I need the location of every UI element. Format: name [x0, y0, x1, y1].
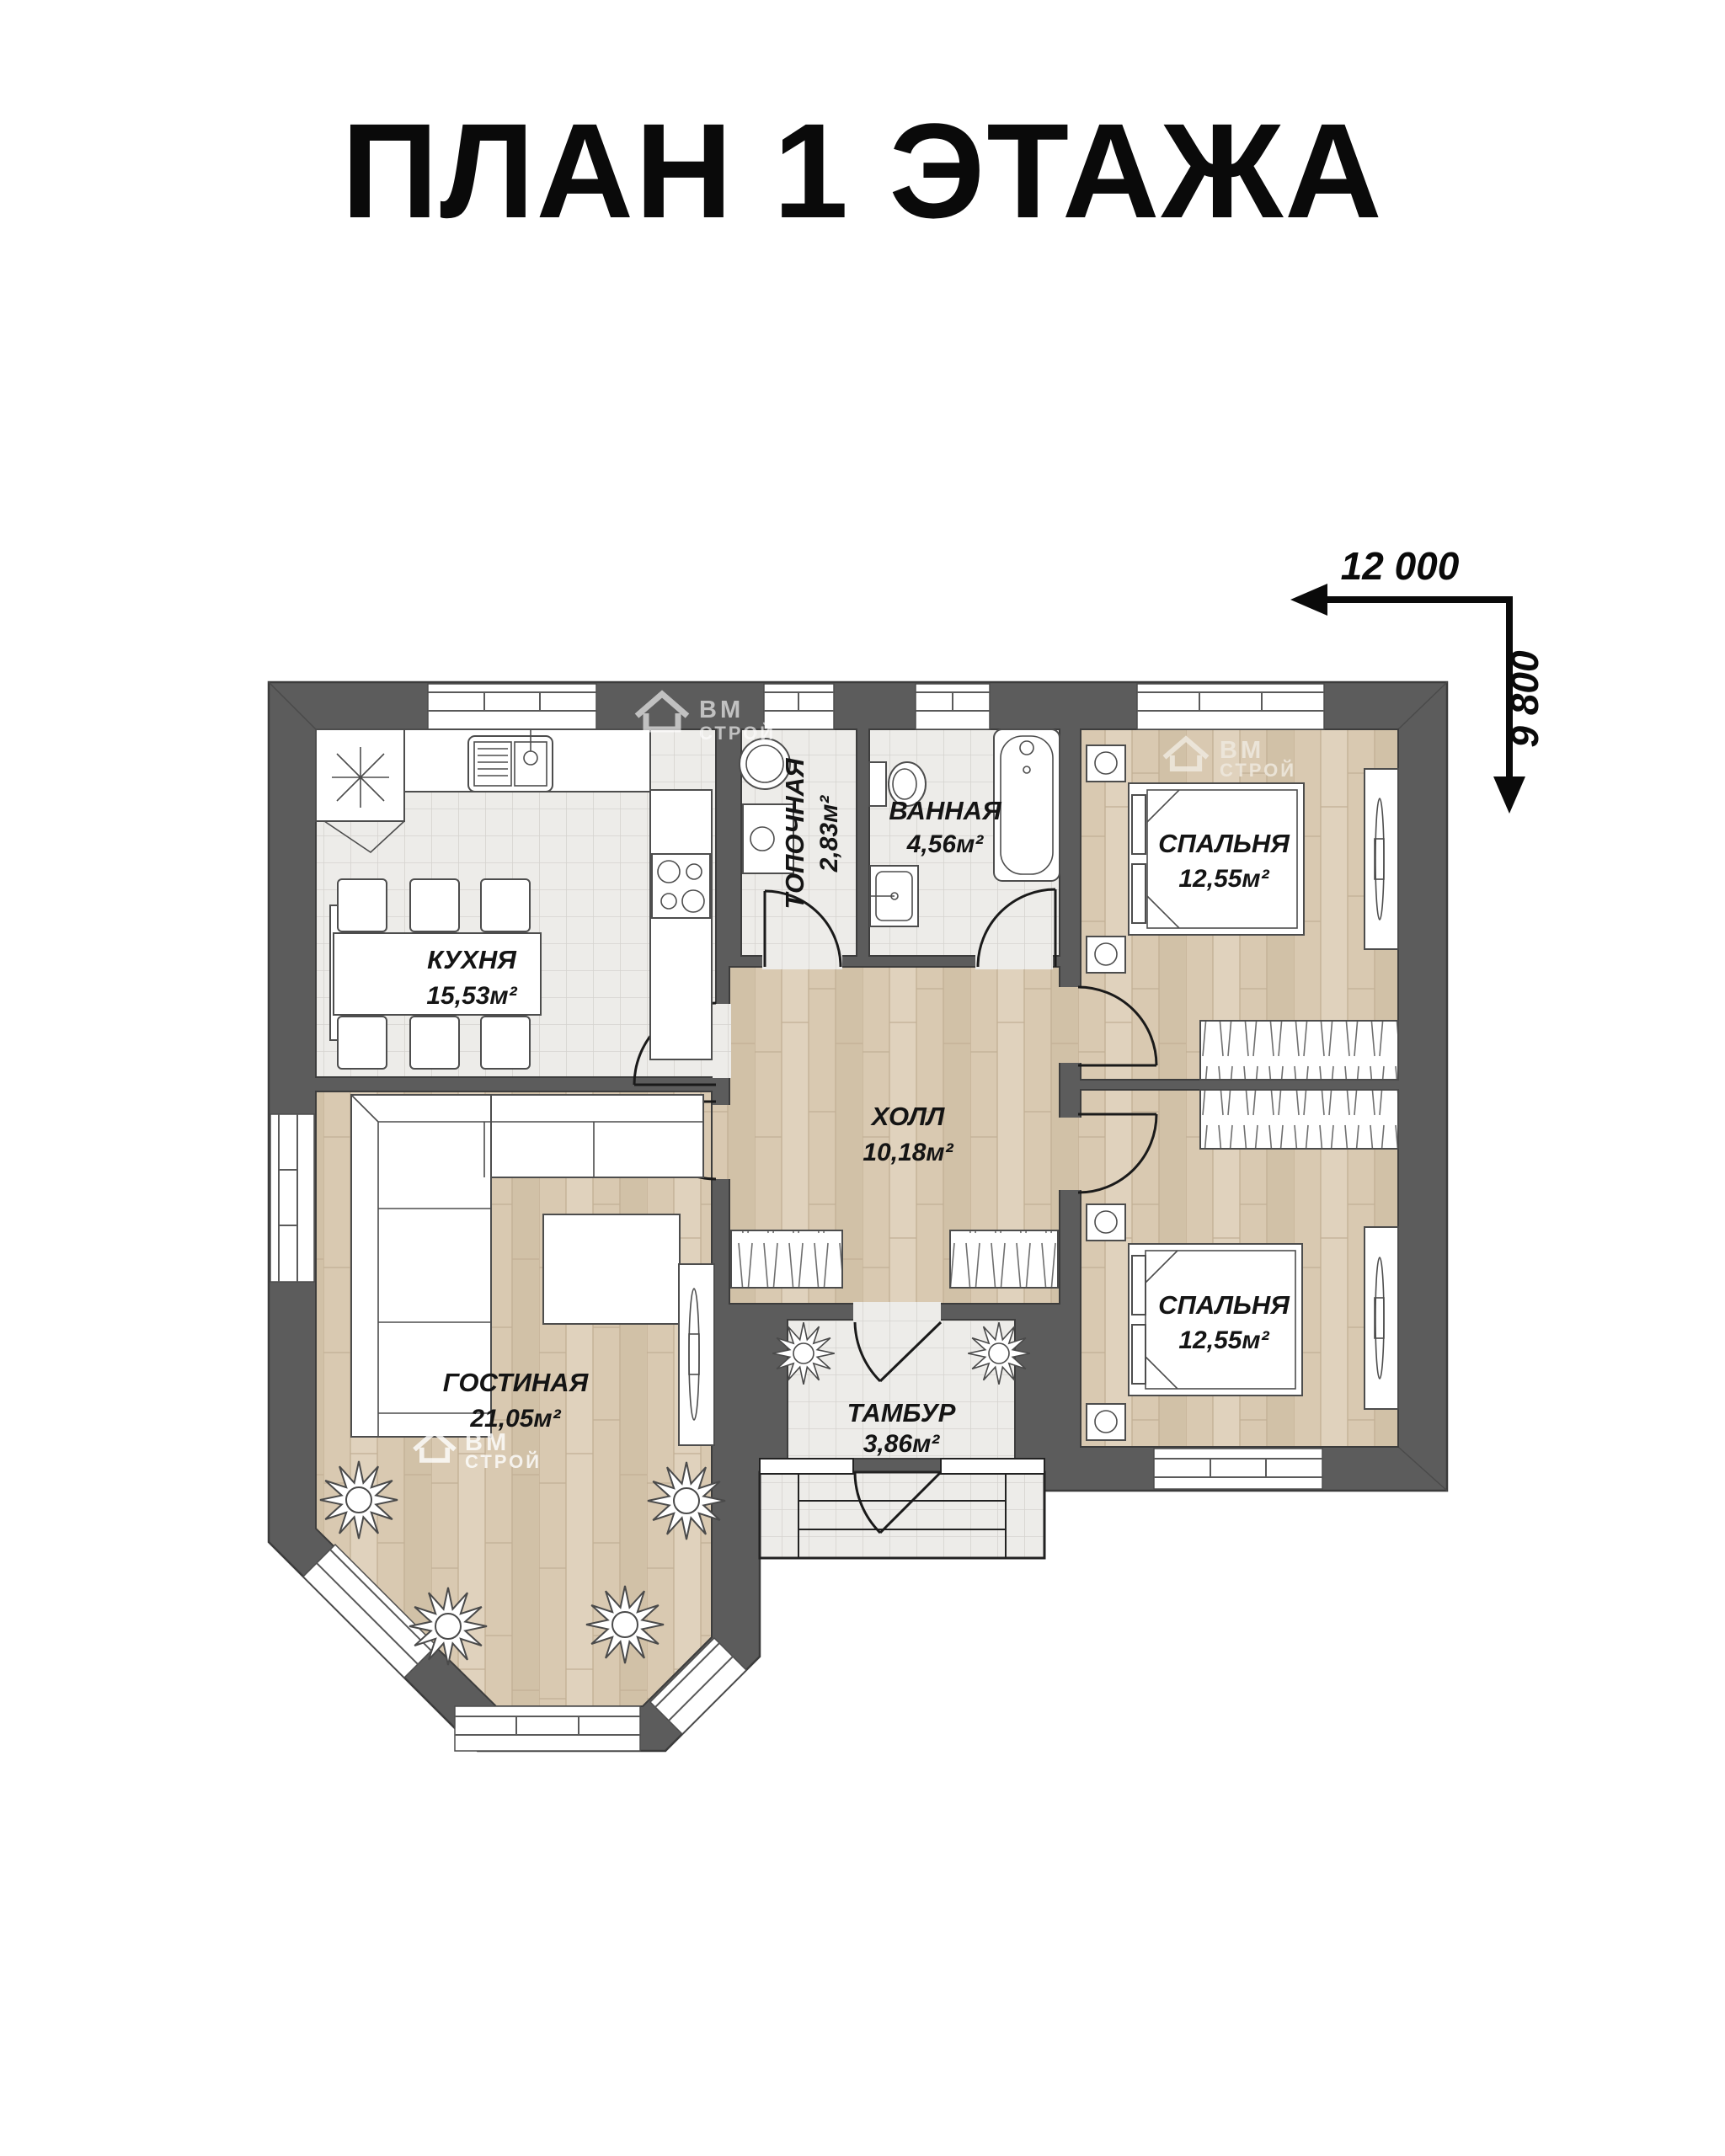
window-bathroom: [916, 684, 990, 729]
door-opening-vestibule: [853, 1302, 941, 1321]
plan-title: ПЛАН 1 ЭТАЖА: [341, 95, 1383, 246]
floor-plan-page: ПЛАН 1 ЭТАЖА 12 000 9 800: [0, 0, 1725, 2156]
window-bedroom1: [1137, 684, 1324, 729]
dining-chair: [338, 1017, 387, 1069]
label-vestibule-area: 3,86м²: [863, 1430, 941, 1458]
window-living-left: [270, 1114, 314, 1282]
label-bedroom2-area: 12,55м²: [1178, 1326, 1269, 1354]
bed: [1129, 783, 1304, 935]
door-opening-bedroom1: [1058, 987, 1082, 1063]
label-boiler-area: 2,83м²: [815, 795, 843, 873]
kitchen-counter-right: [650, 790, 712, 1059]
label-hall-name: ХОЛЛ: [870, 1102, 945, 1131]
dining-chair: [481, 879, 530, 931]
dresser-tv: [1365, 1227, 1398, 1409]
door-opening-kitchen: [713, 1004, 731, 1078]
dining-chair: [410, 1017, 459, 1069]
bathroom-sink: [870, 866, 918, 926]
entrance-threshold-left: [760, 1459, 853, 1474]
dimension-width-label: 12 000: [1341, 544, 1460, 588]
nightstand: [1087, 937, 1125, 973]
label-kitchen-name: КУХНЯ: [427, 945, 517, 974]
dining-chair: [481, 1017, 530, 1069]
label-bedroom1-area: 12,55м²: [1178, 865, 1269, 893]
window-bedroom2: [1154, 1449, 1322, 1489]
window-kitchen: [428, 684, 596, 729]
label-vestibule-name: ТАМБУР: [847, 1398, 956, 1428]
label-living-name: ГОСТИНАЯ: [443, 1368, 590, 1397]
entrance-threshold-right: [941, 1459, 1044, 1474]
kitchen-stove: [652, 854, 710, 918]
dresser-tv: [1365, 769, 1398, 949]
door-opening-bathroom: [975, 953, 1053, 969]
label-bedroom1-name: СПАЛЬНЯ: [1158, 829, 1290, 858]
wardrobe: [1200, 1021, 1398, 1080]
door-opening-bedroom2: [1058, 1118, 1082, 1190]
wardrobe: [950, 1230, 1058, 1288]
brand-text-line2: СТРОЙ: [1220, 760, 1296, 781]
brand-text-line1: ВМ: [699, 696, 744, 723]
label-hall-area: 10,18м²: [862, 1139, 953, 1166]
nightstand: [1087, 1204, 1125, 1241]
label-boiler-name: ТОПОЧНАЯ: [780, 757, 809, 910]
brand-text-line2: СТРОЙ: [465, 1451, 542, 1472]
nightstand: [1087, 745, 1125, 782]
bed: [1129, 1244, 1302, 1396]
brand-text-line2: СТРОЙ: [699, 723, 776, 744]
coffee-table: [543, 1214, 680, 1324]
tv-stand: [679, 1264, 714, 1445]
dimension-height-label: 9 800: [1503, 650, 1546, 748]
door-opening-living: [713, 1105, 731, 1179]
label-bathroom-area: 4,56м²: [906, 830, 985, 858]
window-bay-bottom: [455, 1706, 640, 1751]
dining-chair: [410, 879, 459, 931]
bathtub: [994, 729, 1060, 881]
wardrobe: [1200, 1090, 1398, 1149]
dining-chair: [338, 879, 387, 931]
label-kitchen-area: 15,53м²: [426, 982, 517, 1010]
wardrobe: [731, 1230, 842, 1288]
label-bathroom-name: ВАННАЯ: [889, 796, 1002, 825]
entrance-steps: [760, 1459, 1044, 1558]
door-opening-boiler: [762, 953, 842, 969]
nightstand: [1087, 1404, 1125, 1440]
label-bedroom2-name: СПАЛЬНЯ: [1158, 1290, 1290, 1320]
kitchen-sink: [468, 729, 553, 792]
